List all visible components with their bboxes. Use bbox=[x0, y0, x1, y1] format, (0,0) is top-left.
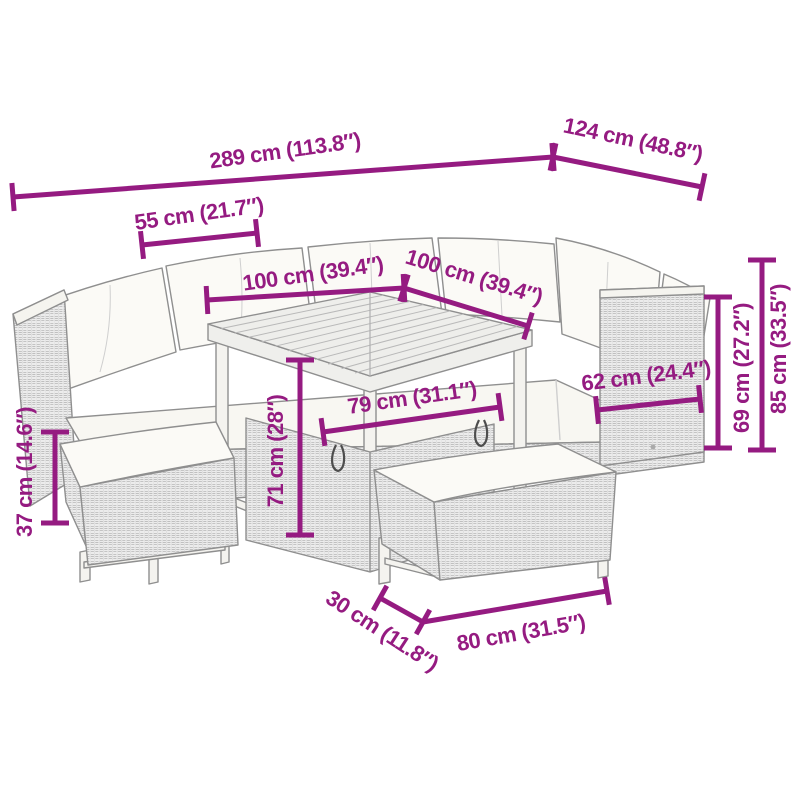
bench-left bbox=[60, 422, 238, 584]
bench-right bbox=[374, 444, 616, 584]
dim-label-85cm: 85 cm (33.5″) bbox=[768, 284, 790, 414]
dim-label-71cm: 71 cm (28″) bbox=[265, 395, 287, 508]
dimension-diagram: 289 cm (113.8″) 124 cm (48.8″) 55 cm (21… bbox=[0, 0, 800, 800]
dim-label-37cm: 37 cm (14.6″) bbox=[14, 407, 36, 537]
dim-label-69cm: 69 cm (27.2″) bbox=[731, 303, 753, 433]
